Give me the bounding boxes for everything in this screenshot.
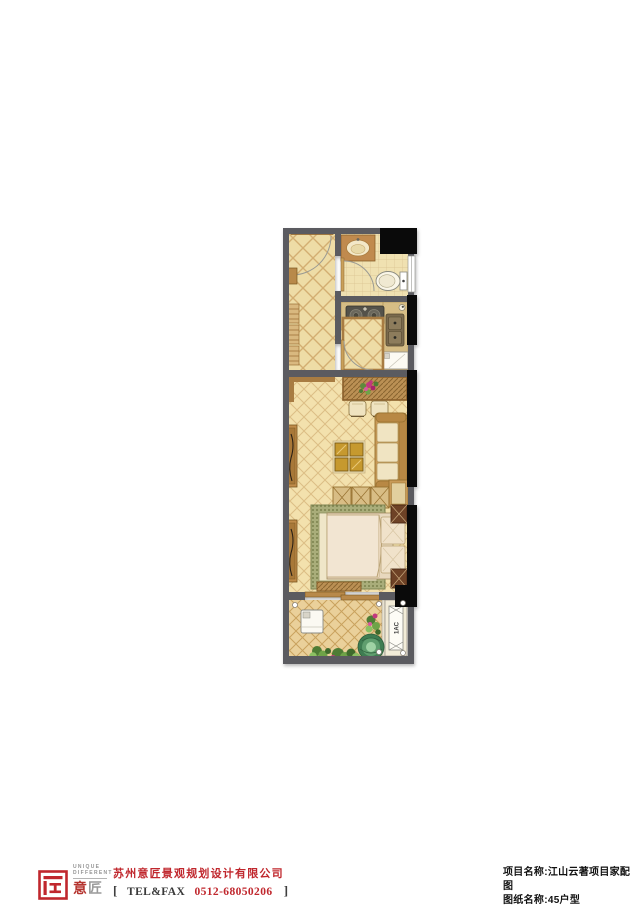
- footer-company-block: UNIQUE DIFFERENT 意匠 苏州意匠景观规划设计有限公司 [ TEL…: [38, 863, 289, 905]
- foot-dresser: [317, 582, 361, 591]
- company-logo-mark: [38, 870, 68, 905]
- ac-unit-label: 1AC: [395, 621, 401, 634]
- tel-bracket-open: [: [113, 883, 118, 898]
- logo-different-text: DIFFERENT: [73, 870, 107, 876]
- tel-bracket-close: ]: [284, 883, 289, 898]
- corner-cabinet: [389, 480, 408, 507]
- company-name: 苏州意匠景观规划设计有限公司: [113, 865, 289, 881]
- kitchen-sink: [386, 314, 404, 346]
- bathroom-window: [408, 256, 415, 292]
- tel-fax-label: TEL&FAX: [127, 886, 185, 898]
- nightstand-top: [391, 505, 407, 523]
- logo-cn-first: 意: [73, 880, 88, 896]
- logo-wordmark: UNIQUE DIFFERENT 意匠: [73, 864, 107, 897]
- counter-drain-dot: [402, 306, 404, 308]
- project-name-line: 项目名称:江山云著项目家配图: [503, 866, 640, 894]
- sofa: [375, 413, 407, 490]
- balcony-slider-door: [305, 592, 385, 600]
- titleblock: 项目名称:江山云著项目家配图 图纸名称:45户型: [503, 866, 640, 908]
- coffee-table: [333, 441, 365, 473]
- sheet-name-line: 图纸名称:45户型: [503, 894, 640, 908]
- bathroom-sink: [341, 235, 375, 261]
- company-tel-line: [ TEL&FAX 0512-68050206 ]: [113, 883, 289, 899]
- fridge: [383, 352, 408, 369]
- washing-machine: [301, 610, 323, 633]
- tel-fax-number: 0512-68050206: [194, 886, 272, 898]
- hallway-cabinets: [288, 304, 299, 365]
- logo-divider: [73, 877, 107, 879]
- kitchen-floor-mat: [343, 318, 383, 370]
- toilet: [376, 272, 407, 291]
- ac-platform: 1AC: [385, 600, 407, 656]
- floor-plan: 1AC: [283, 228, 417, 668]
- logo-cn-second: 匠: [88, 880, 103, 896]
